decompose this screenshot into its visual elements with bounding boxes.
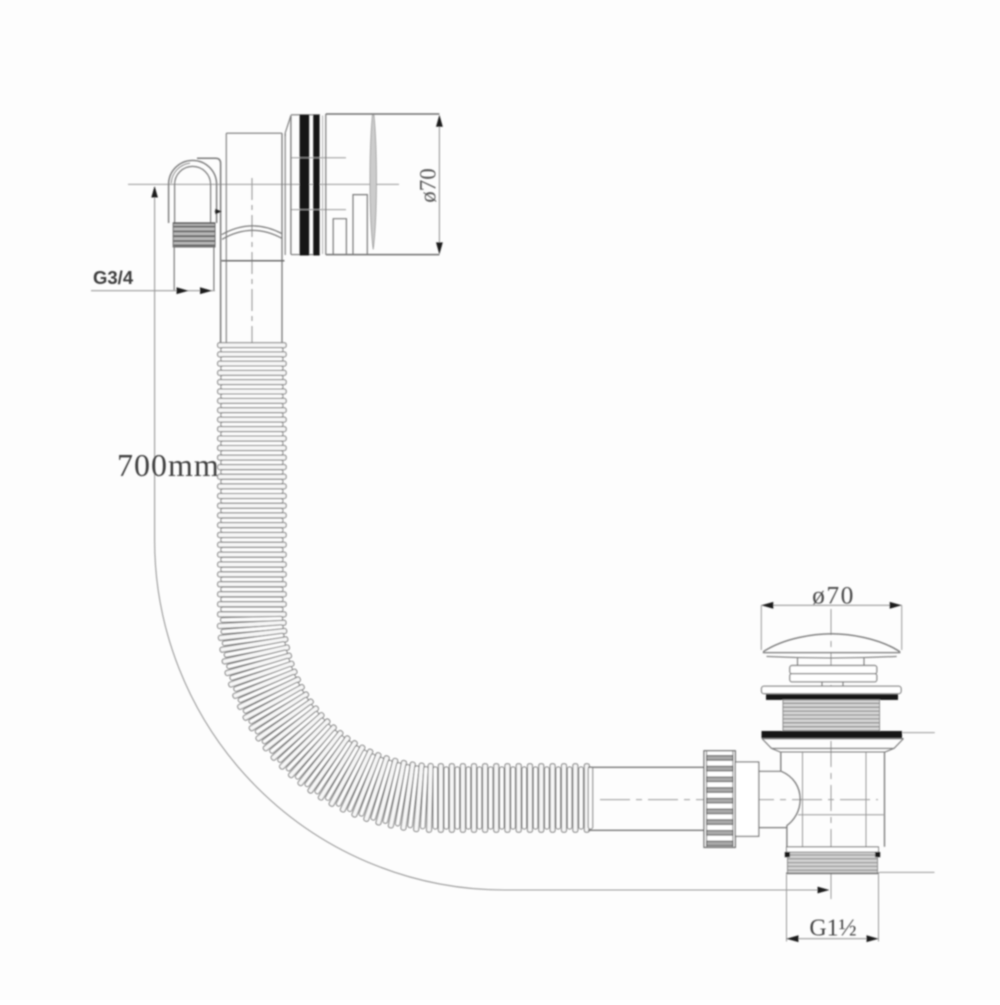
svg-text:700mm: 700mm bbox=[117, 447, 220, 483]
svg-text:ø70: ø70 bbox=[812, 581, 855, 610]
svg-text:ø70: ø70 bbox=[416, 168, 441, 203]
svg-text:G1½: G1½ bbox=[809, 916, 856, 942]
svg-text:G3/4: G3/4 bbox=[93, 267, 134, 288]
